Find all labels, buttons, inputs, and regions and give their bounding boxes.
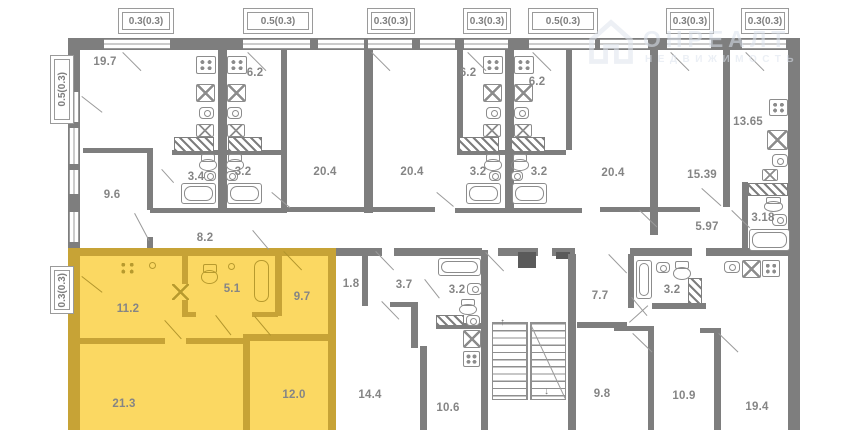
wall-segment (394, 248, 482, 256)
faucet-icon (486, 107, 501, 119)
wall-segment (150, 208, 287, 213)
faucet-icon (772, 154, 788, 167)
stove-icon (762, 260, 780, 277)
faucet-icon (204, 171, 216, 181)
staircase-rail (527, 322, 531, 400)
balcony-label-text: 0.5(0.3) (546, 16, 580, 27)
door-swing (701, 188, 721, 206)
wall-segment (481, 250, 488, 430)
sink-icon (196, 84, 215, 102)
stairs-down-arrow-icon: ↓ (544, 386, 549, 397)
balcony-label-text: 0.3(0.3) (470, 16, 504, 27)
balcony-label: 0.3(0.3) (50, 266, 74, 314)
wall-segment (653, 207, 700, 212)
wall-segment (700, 328, 716, 333)
door-swing (670, 52, 689, 71)
door-swing (252, 230, 269, 250)
sink-icon (483, 84, 502, 102)
washer-icon (483, 124, 501, 137)
wall-segment (600, 207, 653, 212)
faucet-icon (467, 283, 482, 295)
window (104, 39, 170, 49)
faucet-icon (466, 315, 480, 326)
faucet-icon (199, 107, 214, 119)
faucet-icon (511, 171, 523, 181)
toilet-icon (484, 154, 500, 169)
room-area-label: 6.2 (529, 76, 546, 88)
balcony-label: 0.5(0.3) (243, 8, 313, 34)
stove-icon (117, 259, 138, 277)
highlight-wall-segment (328, 256, 336, 430)
wall-segment (614, 326, 650, 331)
room-area-label: 9.7 (294, 291, 311, 303)
highlight-wall-segment (182, 312, 196, 317)
wall-segment (457, 50, 463, 150)
wall-segment (362, 256, 368, 306)
vent-shaft (436, 315, 464, 326)
room-area-label: 3.7 (396, 279, 413, 291)
room-area-label: 5.1 (224, 283, 241, 295)
wall-segment (566, 50, 572, 150)
window (318, 39, 364, 49)
window (600, 39, 648, 49)
window (368, 39, 412, 49)
highlight-wall-segment (275, 256, 282, 316)
toilet-icon (673, 261, 689, 278)
wall-segment (287, 207, 435, 212)
stove-icon (483, 56, 503, 74)
stove-icon (769, 99, 788, 116)
door-swing (608, 254, 627, 273)
room-area-label: 9.8 (594, 388, 611, 400)
door-swing (161, 169, 174, 183)
room-area-label: 3.18 (751, 212, 774, 224)
door-swing (134, 213, 149, 241)
wall-segment (83, 148, 151, 153)
room-area-label: 15.39 (687, 169, 717, 181)
wall-segment (630, 248, 692, 256)
room-area-label: 20.4 (400, 166, 423, 178)
stove-icon (196, 56, 216, 74)
vent-shaft (688, 278, 702, 304)
bathtub-icon (466, 183, 501, 204)
wall-segment (518, 252, 536, 268)
staircase (492, 322, 527, 400)
door-swing (436, 192, 453, 207)
faucet-icon (656, 262, 670, 273)
washer-icon (172, 284, 189, 300)
wall-segment (420, 346, 427, 430)
balcony-label: 0.3(0.3) (741, 8, 789, 34)
balcony-label-text: 0.5(0.3) (261, 16, 295, 27)
window (529, 39, 595, 49)
balcony-label: 0.5(0.3) (528, 8, 598, 34)
balcony-label: 0.3(0.3) (463, 8, 511, 34)
room-area-label: 3.2 (664, 284, 681, 296)
door-swing (532, 52, 551, 71)
room-area-label: 11.2 (117, 303, 140, 315)
sink-icon (742, 260, 761, 278)
balcony-label: 0.3(0.3) (118, 8, 174, 34)
window (667, 39, 711, 49)
highlight-wall-segment (68, 248, 336, 256)
vent-shaft (174, 137, 214, 152)
balcony-label-text: 0.3(0.3) (748, 16, 782, 27)
balcony-label-text: 0.5(0.3) (57, 72, 68, 106)
washer-icon (514, 124, 532, 137)
balcony-label-text: 0.3(0.3) (673, 16, 707, 27)
washer-icon (227, 124, 245, 137)
wall-segment (390, 302, 414, 307)
sink-icon (463, 330, 481, 348)
washer-icon (762, 169, 778, 181)
highlight-wall-segment (186, 338, 243, 344)
room-area-label: 9.6 (104, 189, 121, 201)
door-swing (718, 333, 738, 352)
room-area-label: 3.2 (531, 166, 548, 178)
wall-segment (455, 208, 582, 213)
faucet-icon (724, 261, 740, 273)
room-area-label: 14.4 (358, 389, 381, 401)
bathtub-icon (181, 183, 216, 204)
bathtub-icon (749, 229, 790, 251)
balcony-label-text: 0.3(0.3) (57, 273, 68, 307)
room-area-label: 6.2 (460, 67, 477, 79)
wall-segment (364, 50, 373, 213)
toilet-icon (764, 197, 781, 210)
room-area-label: 7.7 (592, 290, 609, 302)
toilet-icon (201, 264, 216, 282)
stove-icon (514, 56, 534, 74)
room-area-label: 13.65 (733, 116, 763, 128)
faucet-icon (227, 107, 242, 119)
stove-icon (227, 56, 247, 74)
door-swing (122, 52, 141, 71)
faucet-icon (514, 107, 529, 119)
faucet-icon (224, 261, 237, 271)
sink-icon (767, 130, 788, 150)
vent-shaft (511, 137, 545, 152)
faucet-icon (143, 258, 160, 271)
window (69, 212, 79, 242)
door-swing (745, 52, 764, 71)
floor-plan: ↑ ↓ 0.3(0.3) 0.5(0.3) 0.3(0.3) 0.3(0.3) … (0, 0, 854, 430)
toilet-icon (459, 299, 475, 313)
stove-icon (463, 351, 480, 367)
bathtub-icon (252, 258, 271, 304)
room-area-label: 10.6 (436, 402, 459, 414)
door-swing (424, 279, 440, 299)
room-area-label: 3.2 (470, 166, 487, 178)
window (69, 128, 79, 164)
balcony-label-text: 0.3(0.3) (374, 16, 408, 27)
room-area-label: 19.7 (93, 56, 116, 68)
wall-segment (714, 328, 721, 430)
room-area-label: 6.2 (247, 67, 264, 79)
wall-segment (281, 50, 287, 213)
washer-icon (196, 124, 214, 137)
door-swing (375, 251, 394, 270)
wall-segment (411, 302, 418, 348)
window (243, 39, 310, 49)
balcony-label: 0.5(0.3) (50, 55, 74, 124)
bathtub-icon (636, 260, 652, 299)
bathtub-icon (438, 258, 481, 276)
sink-icon (227, 84, 246, 102)
faucet-icon (489, 171, 501, 181)
room-area-label: 3.2 (235, 166, 252, 178)
balcony-label: 0.3(0.3) (367, 8, 415, 34)
room-area-label: 1.8 (343, 278, 360, 290)
wall-segment (218, 50, 227, 208)
room-area-label: 21.3 (112, 398, 135, 410)
room-area-label: 20.4 (313, 166, 336, 178)
door-swing (371, 52, 390, 71)
toilet-icon (199, 154, 215, 169)
room-area-label: 3.2 (449, 284, 466, 296)
wall-segment (147, 148, 153, 210)
window (69, 170, 79, 194)
bathtub-icon (227, 183, 262, 204)
door-swing (81, 96, 102, 113)
wall-segment (723, 50, 730, 207)
room-area-label: 20.4 (601, 167, 624, 179)
window (464, 39, 508, 49)
room-area-label: 8.2 (197, 232, 214, 244)
toilet-icon (511, 154, 527, 169)
balcony-label-text: 0.3(0.3) (129, 16, 163, 27)
vent-shaft (228, 137, 262, 152)
vent-shaft (748, 183, 788, 196)
room-area-label: 3.4 (188, 171, 205, 183)
highlight-wall-segment (243, 341, 250, 430)
highlight-wall-segment (80, 338, 165, 344)
vent-shaft (459, 137, 499, 152)
window (420, 39, 455, 49)
highlight-wall-segment (243, 334, 336, 341)
bathtub-icon (512, 183, 547, 204)
room-area-label: 10.9 (672, 390, 695, 402)
room-area-label: 19.4 (745, 401, 768, 413)
wall-segment (568, 254, 576, 430)
room-area-label: 5.97 (695, 221, 718, 233)
wall-segment (648, 326, 654, 430)
room-area-label: 12.0 (282, 389, 305, 401)
balcony-label: 0.3(0.3) (666, 8, 714, 34)
window (742, 39, 786, 49)
stairs-up-arrow-icon: ↑ (500, 317, 505, 328)
